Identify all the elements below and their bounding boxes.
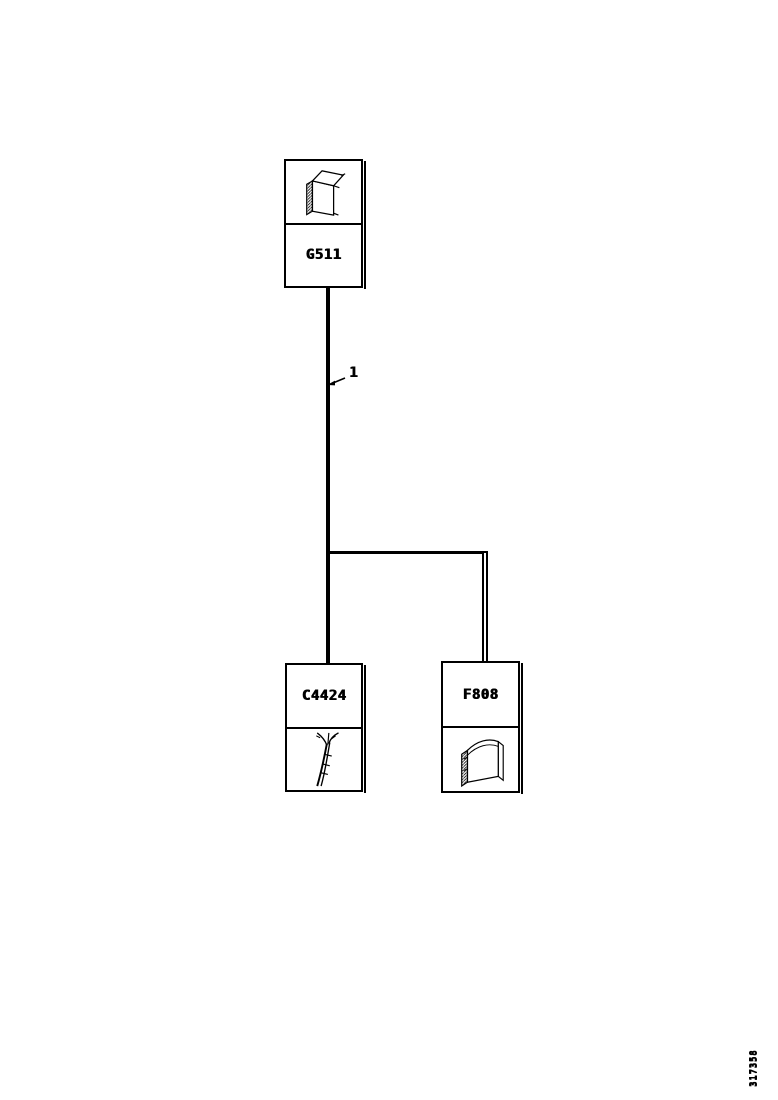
node-c4424-icon-cell (287, 729, 361, 791)
node-f808-label-cell: F808 (443, 663, 518, 728)
node-c4424-label-cell: C4424 (287, 665, 361, 729)
node-g511-icon-cell (286, 161, 361, 225)
cover-component-3d-icon (452, 732, 510, 788)
wiring-diagram-canvas: 1 G511 C4424 (0, 0, 778, 1100)
wire-branch-horizontal (326, 551, 488, 554)
node-f808-icon-cell (443, 728, 518, 791)
node-f808[interactable]: F808 (441, 661, 520, 793)
figure-number: 317358 (748, 1038, 764, 1098)
node-c4424[interactable]: C4424 (285, 663, 363, 792)
wire-main-vertical (326, 288, 330, 663)
node-g511-label-cell: G511 (286, 225, 361, 287)
node-g511-label: G511 (306, 247, 342, 263)
wire-branch-vertical-double (482, 553, 488, 662)
wire-bundle-icon (302, 730, 346, 788)
wire-label[interactable]: 1 (349, 365, 357, 381)
node-f808-label: F808 (463, 687, 499, 703)
node-g511[interactable]: G511 (284, 159, 363, 288)
wire-label-leader-arrow-icon (323, 374, 349, 390)
node-c4424-label: C4424 (302, 688, 347, 704)
terminal-component-3d-icon (299, 164, 349, 220)
